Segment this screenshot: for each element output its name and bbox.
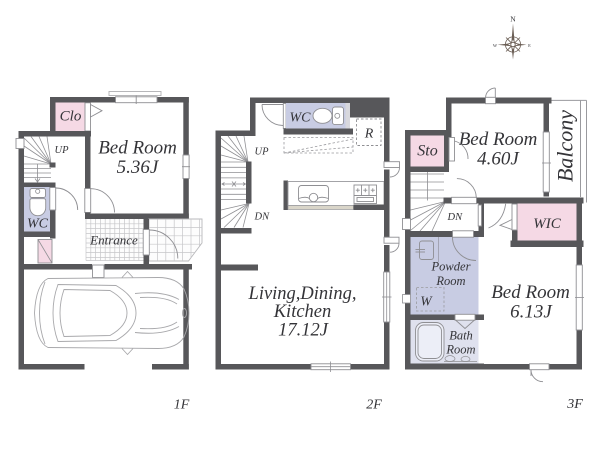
svg-text:Room: Room	[435, 274, 465, 288]
svg-text:UP: UP	[255, 147, 270, 158]
svg-text:3F: 3F	[566, 397, 583, 412]
svg-text:Room: Room	[445, 343, 475, 357]
svg-text:UP: UP	[55, 145, 70, 156]
svg-text:Sto: Sto	[417, 143, 437, 160]
svg-text:DN: DN	[254, 212, 271, 223]
svg-text:Bath: Bath	[449, 329, 473, 343]
svg-text:6.13J: 6.13J	[510, 302, 553, 323]
svg-text:Bed Room: Bed Room	[98, 138, 177, 159]
svg-text:E: E	[528, 43, 531, 48]
svg-text:DN: DN	[447, 212, 464, 223]
svg-text:Kitchen: Kitchen	[273, 302, 332, 322]
svg-text:17.12J: 17.12J	[278, 321, 329, 341]
svg-text:2F: 2F	[366, 398, 382, 413]
svg-text:Clo: Clo	[60, 109, 82, 125]
svg-text:Bed Room: Bed Room	[459, 129, 538, 150]
svg-text:WC: WC	[27, 217, 49, 232]
svg-text:Powder: Powder	[431, 260, 471, 274]
svg-text:1F: 1F	[174, 398, 190, 413]
svg-text:R: R	[364, 127, 374, 142]
svg-text:4.60J: 4.60J	[477, 149, 520, 170]
svg-text:Entrance: Entrance	[89, 233, 138, 248]
svg-text:WIC: WIC	[533, 216, 561, 232]
svg-text:W: W	[420, 294, 433, 309]
svg-text:Living,Dining,: Living,Dining,	[248, 284, 357, 304]
svg-text:5.36J: 5.36J	[117, 157, 160, 178]
svg-text:N: N	[510, 15, 516, 24]
svg-text:W: W	[493, 43, 498, 48]
svg-text:WC: WC	[290, 111, 312, 126]
svg-text:Balcony: Balcony	[553, 110, 578, 182]
svg-text:Bed Room: Bed Room	[491, 282, 570, 303]
